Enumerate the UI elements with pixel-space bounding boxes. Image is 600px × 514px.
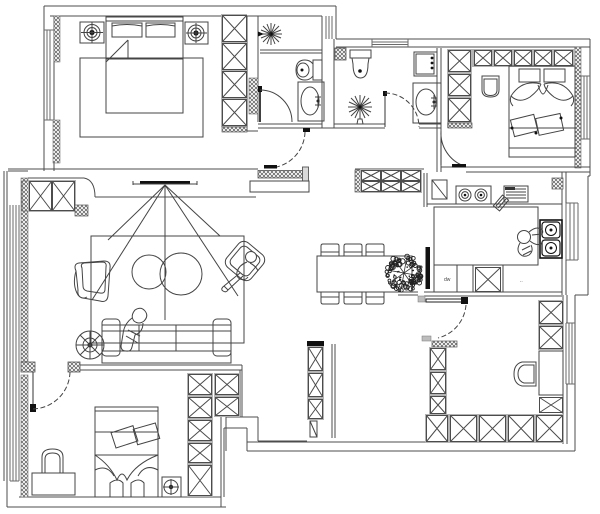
svg-text:dw: dw xyxy=(444,277,451,283)
svg-text:..: .. xyxy=(520,278,523,284)
